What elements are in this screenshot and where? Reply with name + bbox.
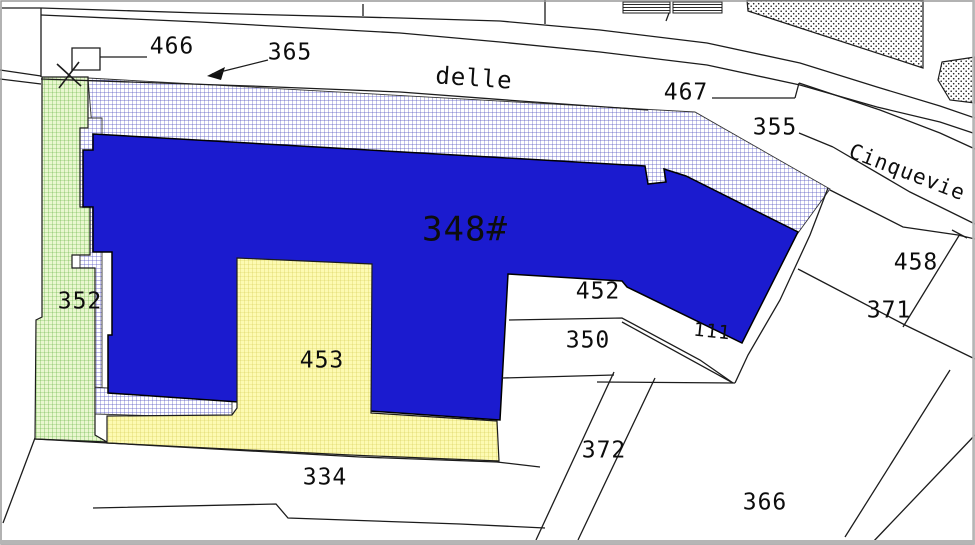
parcel-label-466: 466	[150, 34, 195, 60]
parcel-label-355: 355	[753, 115, 798, 141]
leader-365	[212, 60, 268, 74]
wedge-366-east	[872, 435, 975, 543]
wedge-366-west	[845, 370, 950, 537]
parcel-label-452: 452	[576, 279, 621, 305]
parcel-label-111: 111	[692, 319, 731, 345]
parcel-label-372: 372	[582, 438, 627, 464]
tick-top-building	[666, 13, 669, 21]
divider-458-371	[903, 234, 960, 327]
cadastral-map-window: 466365delle467355Cinquevie352348#4523504…	[0, 0, 975, 545]
parcel-label-458: 458	[894, 250, 939, 276]
divider-350-lower	[502, 375, 614, 378]
parcel-label-350: 350	[566, 328, 611, 354]
road-building-hatched-a	[623, 2, 670, 13]
leader-467-jog	[795, 83, 799, 98]
road-edge-left-2	[0, 79, 41, 84]
parcel-label-352: 352	[58, 289, 103, 315]
street-name-delle: delle	[435, 61, 514, 94]
street-name-cinquevie: Cinquevie	[846, 139, 969, 205]
cadastral-map-canvas[interactable]: 466365delle467355Cinquevie352348#4523504…	[0, 0, 975, 545]
boundary-bottom-left-diag	[3, 438, 35, 523]
parcel-label-334: 334	[303, 465, 348, 491]
leader-355	[799, 133, 833, 147]
parcel-label-365: 365	[268, 40, 313, 66]
road-edge-left-1	[0, 70, 41, 76]
parcel-label-366: 366	[743, 490, 788, 516]
parcel-label-467: 467	[664, 80, 709, 106]
road-building-hatched-b	[673, 2, 722, 13]
parcel-label-371: 371	[867, 298, 912, 324]
parcel-line-below-tip	[597, 382, 735, 383]
parcel-label-348: 348#	[422, 210, 508, 250]
boundary-334-lower	[93, 504, 545, 528]
stippled-parcel-small	[938, 57, 975, 103]
parcel-label-453: 453	[300, 348, 345, 374]
